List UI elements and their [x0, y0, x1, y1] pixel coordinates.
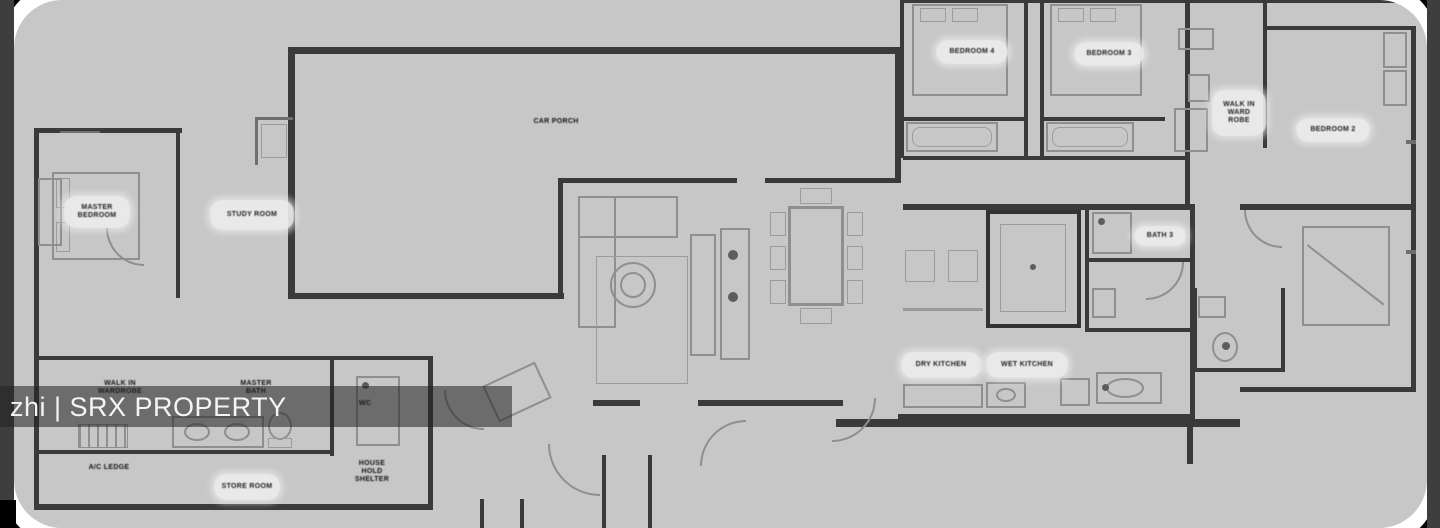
wardrobe — [38, 178, 62, 246]
toilet-dot — [1222, 342, 1230, 350]
room-label-text: HOLD — [361, 468, 382, 476]
wall — [1240, 387, 1416, 392]
bathtub-inner — [1052, 127, 1128, 147]
stool — [948, 250, 978, 282]
room-label-bath3: BATH 3 — [1134, 226, 1186, 246]
floorplan-image: CAR PORCH STUDY ROOM MASTER BEDROOM BEDR… — [14, 0, 1427, 528]
wall — [836, 419, 1240, 427]
toilet — [1092, 288, 1116, 318]
duct — [261, 124, 287, 158]
wall — [1267, 26, 1415, 30]
room-label-hall: CAR PORCH — [518, 118, 594, 126]
room-label-ac-ledge: A/C LEDGE — [78, 464, 140, 472]
toilet — [1188, 74, 1210, 102]
wall — [1024, 0, 1028, 156]
bed — [1302, 226, 1390, 326]
dining-table — [788, 206, 844, 306]
room-label-text: A/C LEDGE — [89, 464, 130, 472]
wall — [34, 504, 432, 510]
room-label-bedroom2: BEDROOM 2 — [1296, 118, 1370, 142]
pillow — [920, 8, 946, 22]
wall — [288, 47, 295, 299]
room-label-bedroom4: BEDROOM 4 — [936, 40, 1008, 64]
wall — [288, 293, 564, 299]
drain-dot — [1102, 384, 1109, 391]
room-label-text: BEDROOM 4 — [949, 48, 994, 56]
floorplan-sheet: CAR PORCH STUDY ROOM MASTER BEDROOM BEDR… — [14, 0, 1427, 528]
window-tick — [1406, 140, 1416, 144]
wall — [288, 47, 902, 54]
bed-cover-line — [1307, 244, 1385, 306]
chair — [847, 280, 863, 304]
door-arc — [548, 444, 600, 496]
wall — [1085, 204, 1089, 330]
door-arc — [832, 398, 876, 442]
right-dark-strip — [1427, 0, 1440, 528]
wall — [903, 156, 1185, 160]
room-label-bedroom3: BEDROOM 3 — [1074, 42, 1144, 66]
wall — [1193, 288, 1197, 372]
watermark-text: zhi | SRX PROPERTY — [10, 392, 287, 423]
chair — [800, 188, 832, 204]
wardrobe — [1383, 32, 1407, 68]
wall — [34, 356, 432, 360]
wall — [593, 400, 843, 406]
door-arc — [700, 420, 746, 466]
hob — [1060, 378, 1090, 406]
door-opening — [737, 178, 765, 183]
room-label-text: ROBE — [1228, 117, 1249, 125]
wall — [428, 356, 433, 510]
sink-unit — [1198, 296, 1226, 318]
wall — [1187, 419, 1193, 464]
wall — [1193, 368, 1285, 372]
room-label-text: STORE ROOM — [222, 483, 273, 491]
room-label-text: BEDROOM 3 — [1086, 50, 1131, 58]
floorplan-page: CAR PORCH STUDY ROOM MASTER BEDROOM BEDR… — [0, 0, 1440, 528]
room-label-text: BATH 3 — [1147, 232, 1174, 240]
wall — [1281, 288, 1285, 372]
sink — [996, 388, 1016, 402]
room-label-master-bedroom: MASTER BEDROOM — [64, 196, 130, 228]
room-label-study: STUDY ROOM — [210, 200, 294, 230]
chair — [800, 308, 832, 324]
coffee-table-inner — [620, 272, 646, 298]
room-label-shelter: HOUSE HOLD SHELTER — [346, 460, 398, 484]
chair — [847, 246, 863, 270]
wardrobe — [1383, 70, 1407, 106]
room-label-wet-kitchen: WET KITCHEN — [986, 352, 1068, 378]
room-label-text: WET KITCHEN — [1001, 361, 1053, 369]
chair — [770, 280, 786, 304]
wall — [648, 455, 652, 528]
wall — [900, 0, 904, 158]
marker-dot — [728, 292, 738, 302]
door-arc — [106, 228, 144, 266]
counter — [1174, 108, 1208, 152]
room-label-text: STUDY ROOM — [227, 211, 277, 219]
door-arc — [1146, 262, 1184, 300]
room-label-text: HOUSE — [359, 460, 385, 468]
wall — [560, 178, 901, 183]
tv-console — [690, 234, 716, 356]
room-label-store: STORE ROOM — [214, 474, 280, 500]
room-label-text: DRY KITCHEN — [916, 361, 967, 369]
door-arc — [1244, 210, 1282, 248]
vanity — [1178, 28, 1214, 50]
pillow — [1090, 8, 1116, 22]
wall — [1040, 0, 1044, 156]
wall — [903, 0, 1419, 3]
ac-ledge-louvre — [78, 424, 128, 448]
room-label-text: CAR PORCH — [533, 118, 578, 126]
room-label-text: MASTER — [81, 204, 112, 212]
wall — [1043, 117, 1165, 121]
wall — [34, 128, 182, 133]
chair — [770, 212, 786, 236]
room-label-dry-kitchen: DRY KITCHEN — [901, 352, 981, 378]
wall — [255, 117, 258, 165]
room-label-text: SHELTER — [355, 476, 389, 484]
stool — [905, 250, 935, 282]
window-tick — [60, 131, 100, 133]
room-label-text: WARD — [1228, 109, 1251, 117]
wall — [558, 178, 563, 299]
wall — [255, 117, 293, 120]
wall — [520, 499, 524, 528]
shower-head — [1098, 218, 1105, 225]
room-label-walkin-top: WALK IN WARD ROBE — [1212, 90, 1266, 136]
wall — [903, 117, 1025, 121]
pillow — [1058, 8, 1084, 22]
chair — [770, 246, 786, 270]
wall — [602, 455, 606, 528]
marker-dot — [1030, 264, 1036, 270]
kitchen-counter — [903, 384, 983, 408]
chair — [847, 212, 863, 236]
left-dark-strip — [0, 0, 14, 528]
wall — [176, 128, 180, 298]
wall — [480, 499, 484, 528]
bathtub-inner — [912, 127, 992, 147]
counter-line — [903, 308, 983, 311]
door-opening — [640, 400, 698, 406]
room-label-text: WALK IN — [1223, 101, 1255, 109]
marker-dot — [728, 250, 738, 260]
bathtub-inner — [1106, 378, 1144, 398]
pillow — [952, 8, 978, 22]
window-tick — [1406, 250, 1416, 254]
toilet-tank — [268, 438, 292, 448]
wall — [1085, 328, 1191, 332]
room-label-text: BEDROOM — [78, 212, 117, 220]
room-label-text: BEDROOM 2 — [1310, 126, 1355, 134]
wall — [34, 450, 334, 454]
